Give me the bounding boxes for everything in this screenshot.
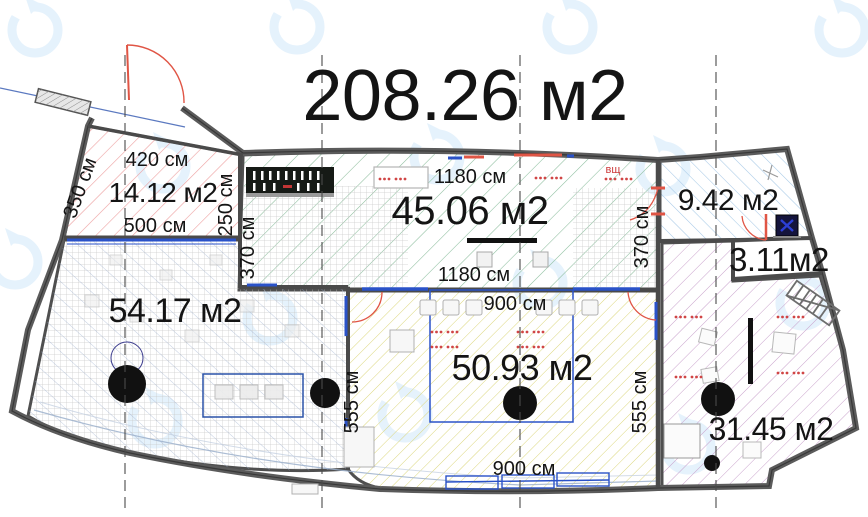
watermark-logo — [806, 0, 865, 53]
entrance-door-arc — [127, 45, 184, 103]
room6-dim-bottom: 900 см — [493, 458, 556, 480]
room1-dim-top: 420 см — [126, 149, 189, 171]
column-small — [704, 455, 720, 471]
washing-machine-icon — [773, 215, 801, 237]
floor-plan-svg: 208.26 м2 420 см 14.12 м2 500 см 350 см … — [0, 0, 868, 517]
total-area-title: 208.26 м2 — [302, 56, 627, 136]
room2-dim-bottom: 1180 см — [438, 264, 510, 286]
floor-plan-page: 208.26 м2 420 см 14.12 м2 500 см 350 см … — [0, 0, 868, 517]
room2-dim-top: 1180 см — [434, 166, 506, 188]
room2-area-label: 45.06 м2 — [392, 189, 549, 233]
table — [374, 167, 428, 188]
watermark-logo — [261, 0, 320, 50]
room2-dim-right: 370 см — [631, 206, 653, 269]
room6-dim-left: 555 см — [341, 371, 363, 434]
chair — [533, 252, 548, 267]
room4-area-label: 3.11м2 — [729, 241, 829, 278]
room6-dim-right: 555 см — [629, 371, 651, 434]
room1-dim-right: 250 см — [215, 174, 237, 237]
column — [310, 378, 340, 408]
room1-dim-bottom: 500 см — [124, 215, 187, 237]
room5-area-label: 54.17 м2 — [109, 292, 242, 330]
wall-bar — [748, 318, 753, 384]
room7-area-label: 31.45 м2 — [709, 411, 834, 447]
entrance-door-leaf — [127, 45, 129, 100]
room6-area-label: 50.93 м2 — [452, 347, 593, 388]
watermark-logo — [534, 0, 593, 50]
column — [108, 365, 146, 403]
room1-area-label: 14.12 м2 — [109, 177, 218, 208]
carpet-zone — [243, 186, 408, 287]
watermark-logo — [0, 224, 38, 285]
room6-dim-top: 900 см — [484, 293, 547, 315]
entrance-wall-stub — [35, 89, 91, 116]
room2-note: вщ — [606, 164, 621, 176]
room3-area-label: 9.42 м2 — [678, 184, 779, 217]
bar-counter — [246, 167, 334, 197]
desk-chairs — [215, 385, 283, 399]
table-black — [467, 238, 537, 243]
room2-dim-left: 370 см — [237, 217, 259, 280]
watermark-logo — [0, 0, 58, 53]
